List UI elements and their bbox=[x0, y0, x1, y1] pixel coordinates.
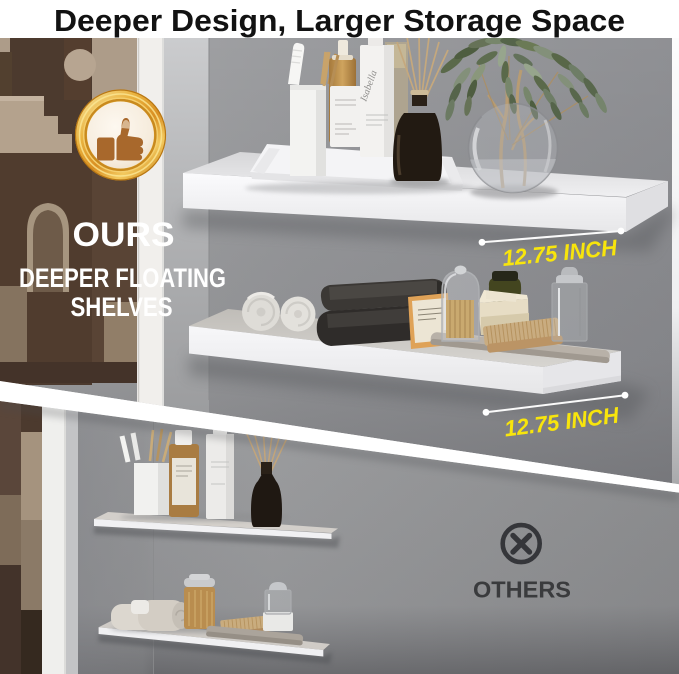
svg-text:Deeper Design, Larger Storage: Deeper Design, Larger Storage Space bbox=[54, 3, 625, 38]
svg-text:DEEPER FLOATING: DEEPER FLOATING bbox=[19, 263, 226, 293]
svg-text:OURS: OURS bbox=[73, 216, 175, 254]
svg-text:OTHERS: OTHERS bbox=[473, 577, 571, 603]
svg-text:SHELVES: SHELVES bbox=[71, 292, 173, 322]
